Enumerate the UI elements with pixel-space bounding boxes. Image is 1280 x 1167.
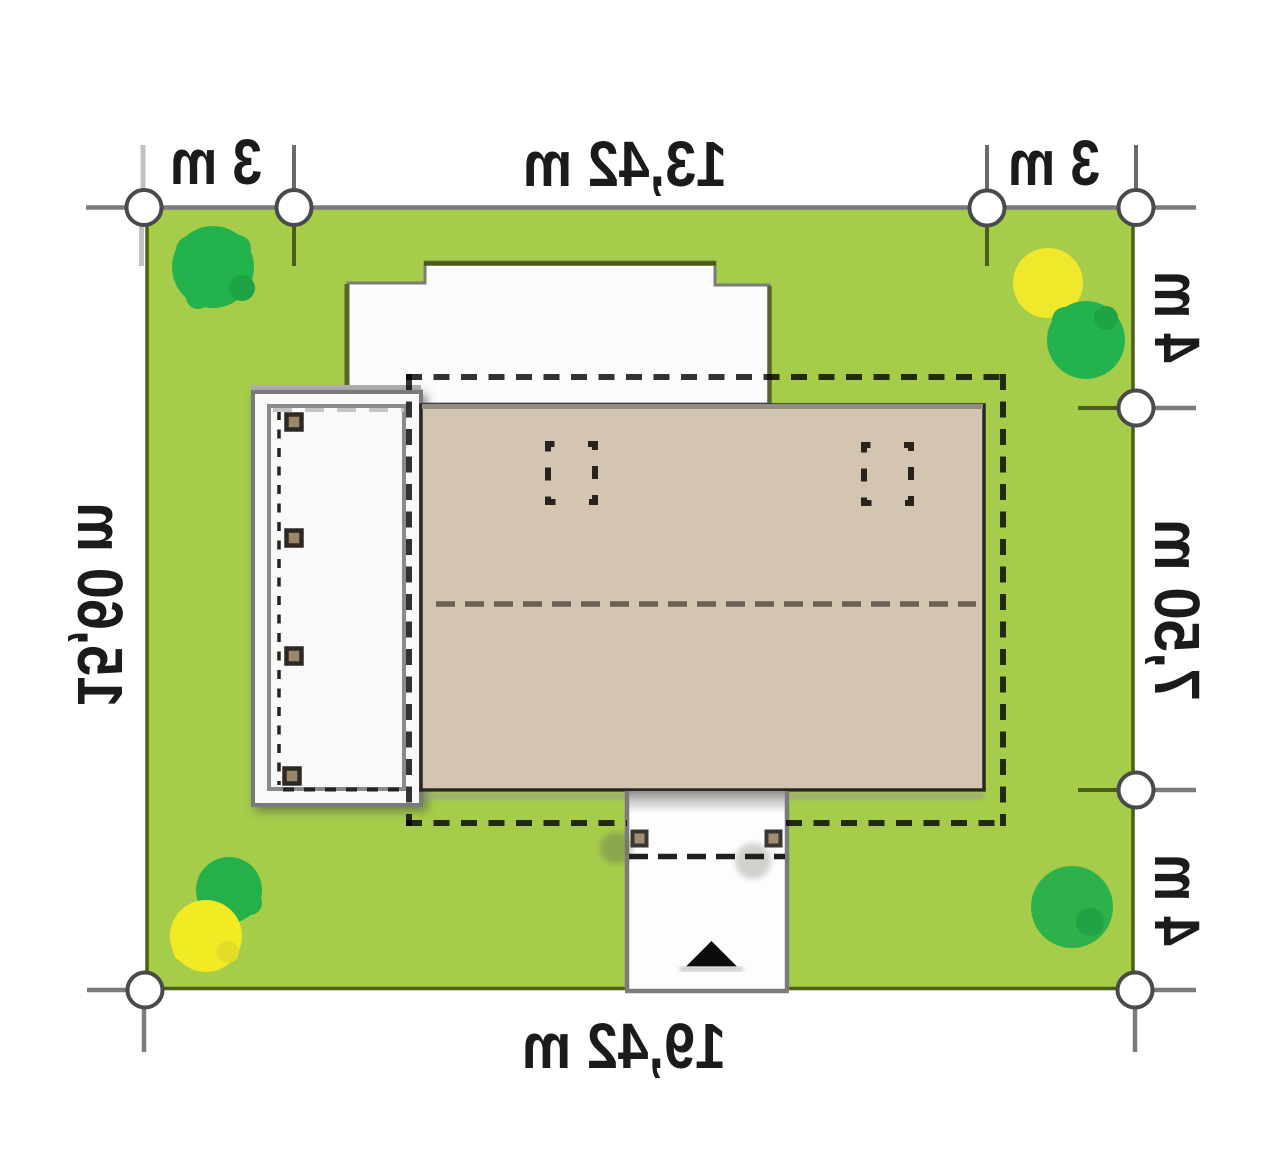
- svg-text:13,42 m: 13,42 m: [523, 128, 727, 200]
- svg-text:3 m: 3 m: [1008, 127, 1100, 199]
- svg-text:4 m: 4 m: [1141, 271, 1213, 363]
- svg-text:7,50 m: 7,50 m: [1141, 519, 1213, 701]
- svg-text:19,42 m: 19,42 m: [522, 1010, 726, 1082]
- svg-text:4 m: 4 m: [1141, 854, 1213, 946]
- svg-text:15,60 m: 15,60 m: [64, 503, 136, 708]
- svg-text:3 m: 3 m: [170, 126, 262, 198]
